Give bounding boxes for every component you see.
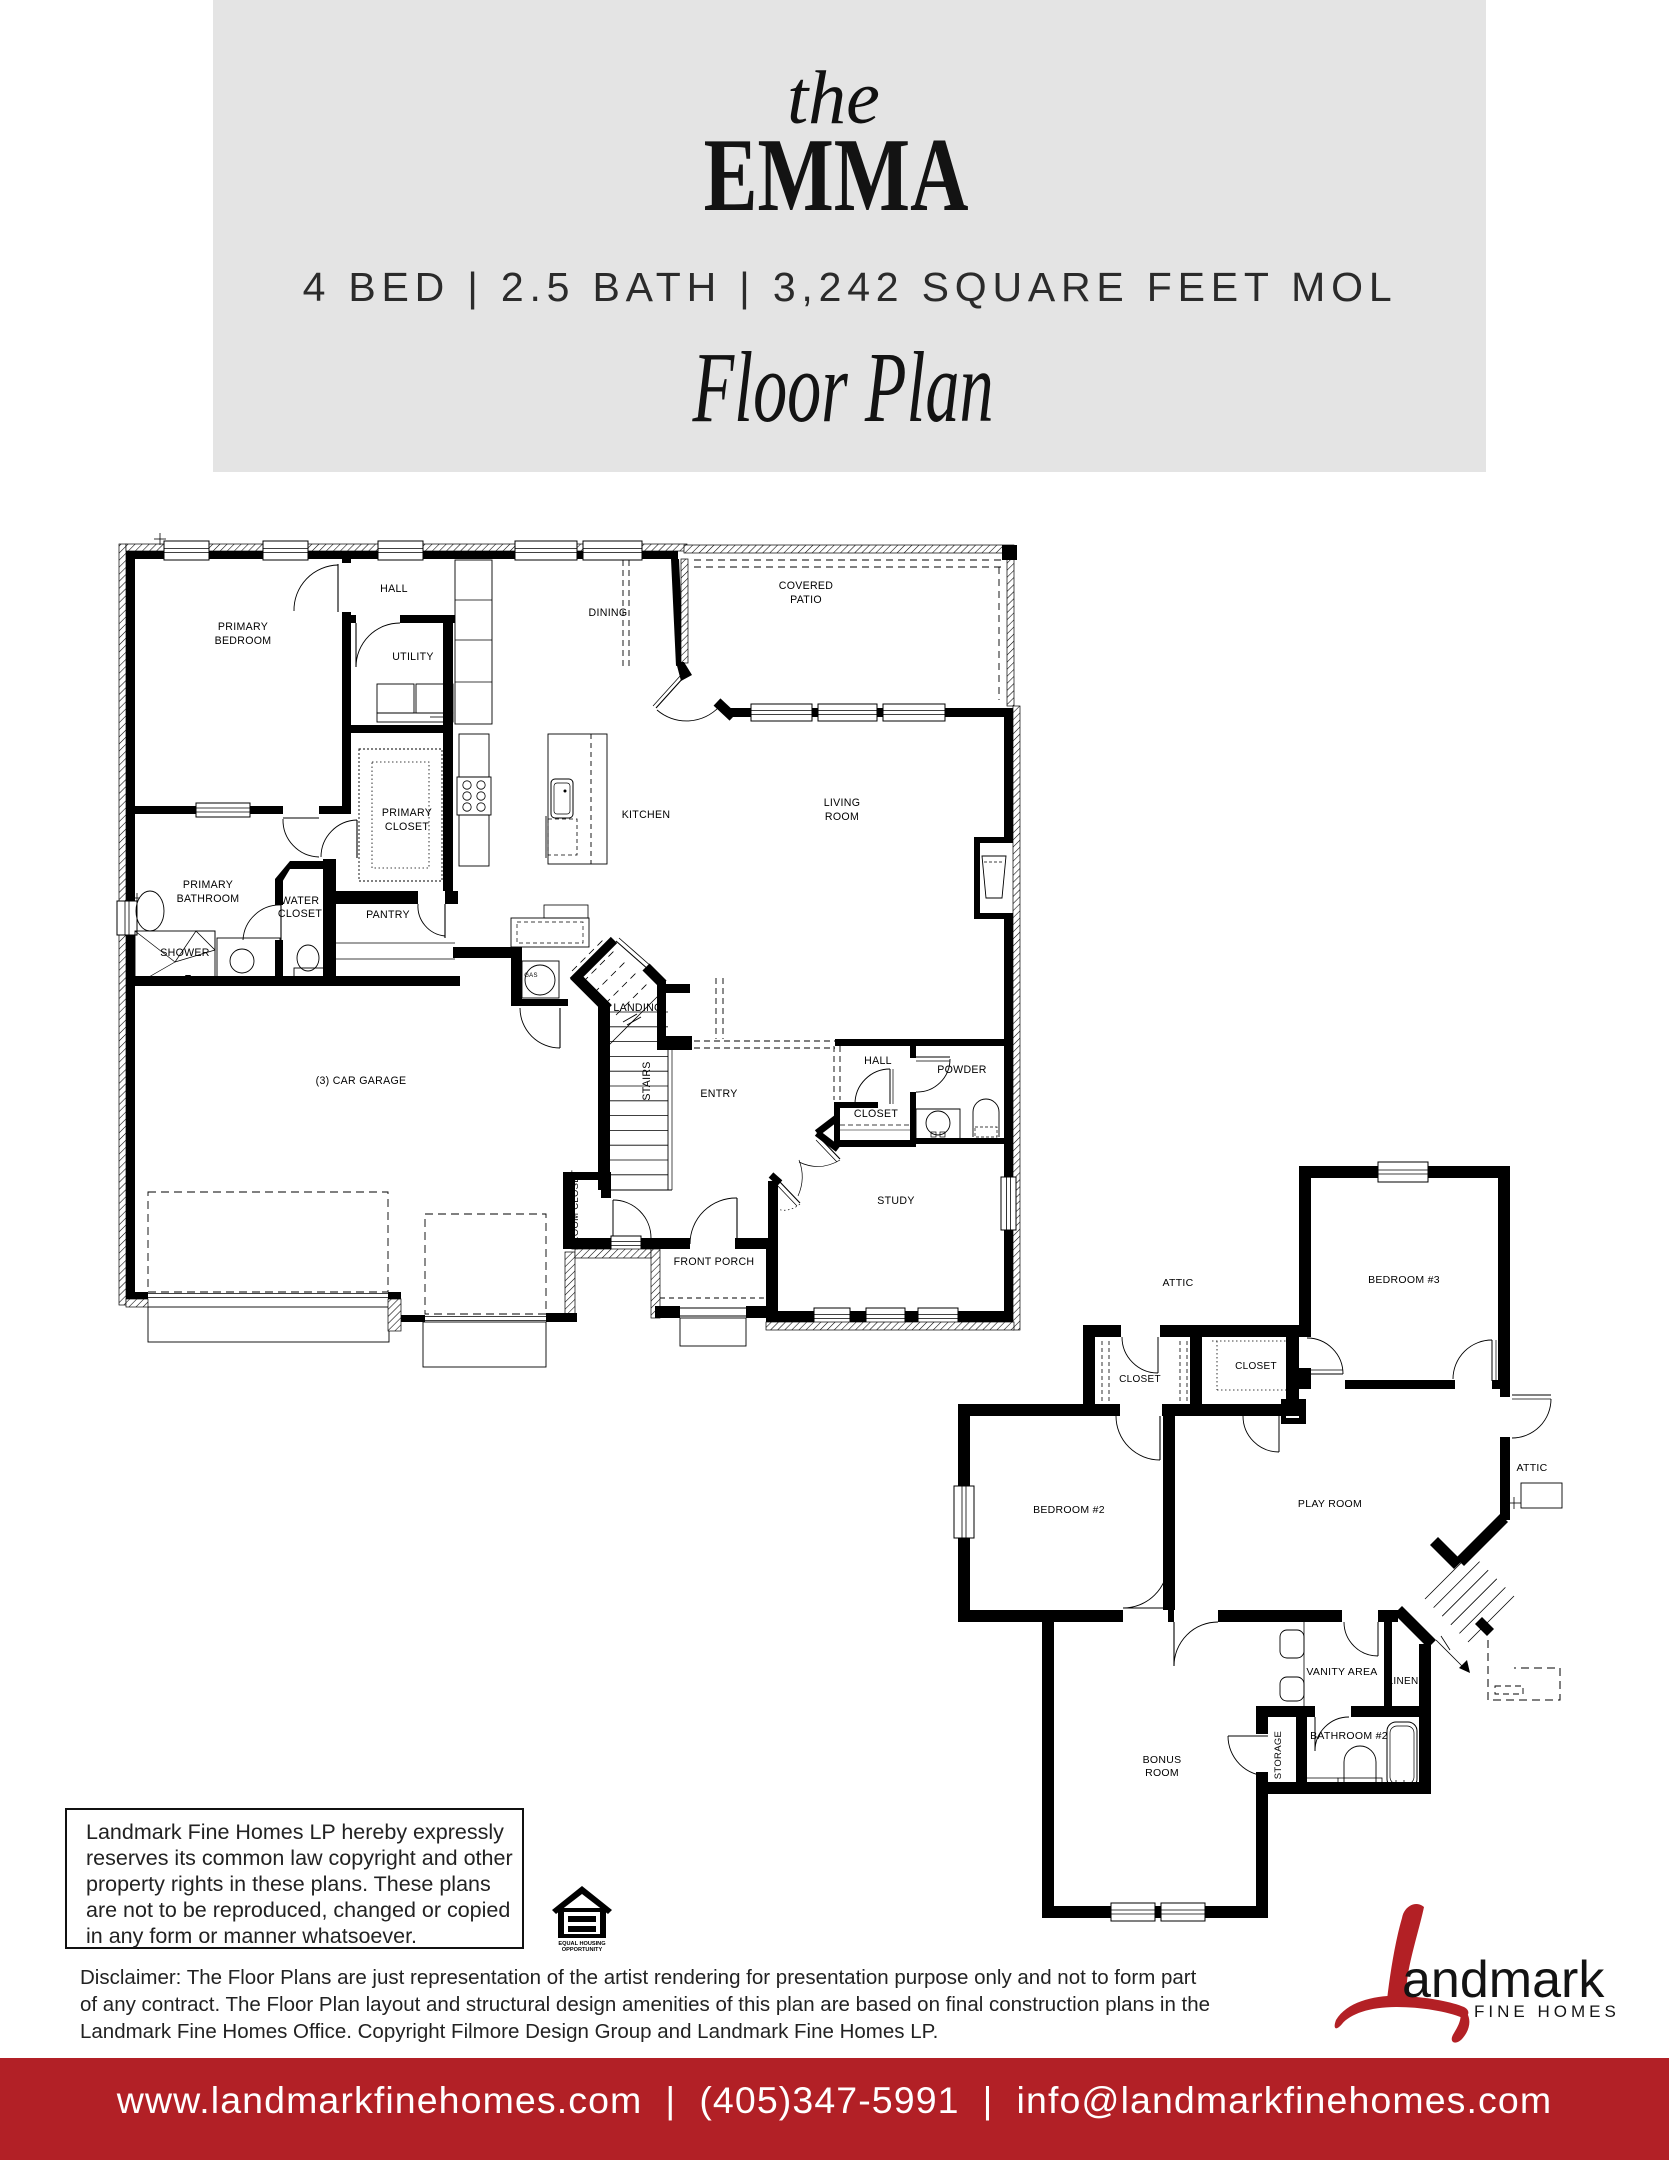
svg-text:BROOM CLOSET: BROOM CLOSET (570, 1170, 581, 1250)
svg-text:ENTRY: ENTRY (700, 1088, 737, 1100)
svg-text:andmark: andmark (1402, 1951, 1605, 2009)
svg-text:DINING: DINING (589, 607, 628, 619)
svg-text:BONUS: BONUS (1143, 1754, 1182, 1766)
svg-text:PRIMARY: PRIMARY (218, 621, 268, 633)
svg-text:PRIMARY: PRIMARY (382, 807, 432, 819)
svg-text:CLOSET: CLOSET (1235, 1361, 1277, 1372)
svg-text:PRIMARY: PRIMARY (183, 879, 233, 891)
svg-text:BEDROOM #3: BEDROOM #3 (1368, 1274, 1440, 1286)
svg-text:PANTRY: PANTRY (366, 909, 410, 921)
svg-text:FRONT PORCH: FRONT PORCH (674, 1256, 755, 1268)
svg-text:LINEN: LINEN (1388, 1676, 1419, 1687)
svg-text:GAS: GAS (524, 973, 538, 979)
svg-text:VANITY AREA: VANITY AREA (1306, 1666, 1377, 1678)
svg-text:CLOSET: CLOSET (385, 821, 429, 833)
svg-text:COVERED: COVERED (779, 580, 834, 592)
svg-text:PLAY ROOM: PLAY ROOM (1298, 1498, 1362, 1510)
svg-text:BEDROOM: BEDROOM (215, 635, 272, 647)
svg-text:BEDROOM #2: BEDROOM #2 (1033, 1504, 1105, 1516)
svg-text:PATIO: PATIO (790, 594, 822, 606)
svg-text:UTILITY: UTILITY (392, 651, 434, 663)
svg-text:LANDING: LANDING (613, 1002, 662, 1014)
svg-text:POWDER: POWDER (937, 1064, 987, 1076)
svg-text:ATTIC: ATTIC (1162, 1277, 1193, 1289)
svg-text:ROOM: ROOM (1145, 1767, 1179, 1779)
svg-text:OPPORTUNITY: OPPORTUNITY (562, 1947, 603, 1952)
svg-text:CLOSET: CLOSET (1119, 1374, 1161, 1385)
svg-text:SHOWER: SHOWER (160, 947, 210, 959)
svg-text:ROOM: ROOM (825, 811, 859, 823)
svg-text:HALL: HALL (864, 1055, 892, 1067)
svg-text:HALL: HALL (380, 583, 408, 595)
svg-text:STUDY: STUDY (877, 1195, 914, 1207)
svg-text:STAIRS: STAIRS (641, 1061, 653, 1100)
svg-text:ATTIC: ATTIC (1516, 1462, 1547, 1474)
svg-text:BATHROOM: BATHROOM (177, 893, 240, 905)
svg-text:BATHROOM #2: BATHROOM #2 (1310, 1730, 1388, 1742)
svg-text:FINE HOMES: FINE HOMES (1474, 2002, 1620, 2021)
svg-text:WATER: WATER (281, 895, 320, 907)
svg-text:LIVING: LIVING (824, 797, 861, 809)
svg-text:KITCHEN: KITCHEN (622, 809, 671, 821)
svg-text:CLOSET: CLOSET (278, 908, 322, 920)
svg-text:(3) CAR GARAGE: (3) CAR GARAGE (316, 1075, 407, 1087)
svg-text:STORAGE: STORAGE (1273, 1731, 1284, 1779)
svg-text:CLOSET: CLOSET (854, 1108, 898, 1120)
